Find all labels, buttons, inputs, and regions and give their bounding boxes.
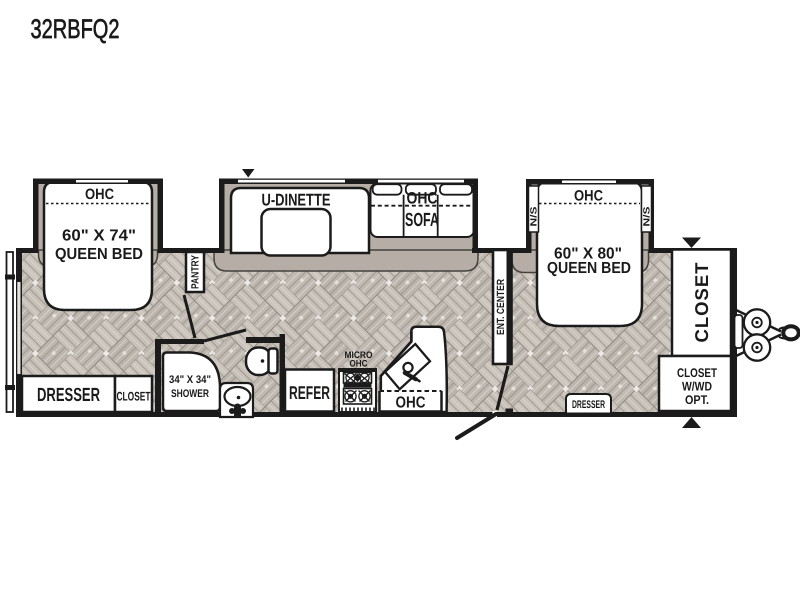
- svg-text:OPT.: OPT.: [685, 393, 709, 407]
- svg-text:34" X 34": 34" X 34": [169, 374, 211, 386]
- svg-text:32RBFQ2: 32RBFQ2: [31, 14, 120, 44]
- svg-text:OHC: OHC: [85, 186, 114, 203]
- svg-text:SOFA: SOFA: [405, 210, 439, 231]
- svg-text:OHC: OHC: [350, 359, 368, 370]
- svg-text:DRESSER: DRESSER: [572, 399, 605, 411]
- svg-text:W/WD: W/WD: [682, 380, 712, 394]
- svg-text:QUEEN BED: QUEEN BED: [55, 246, 143, 263]
- svg-text:CLOSET: CLOSET: [691, 262, 712, 343]
- svg-text:OHC: OHC: [407, 189, 438, 207]
- svg-text:CLOSET: CLOSET: [677, 366, 717, 380]
- svg-text:ENT. CENTER: ENT. CENTER: [495, 279, 507, 335]
- svg-text:U-DINETTE: U-DINETTE: [262, 191, 331, 210]
- svg-text:REFER: REFER: [289, 382, 330, 403]
- svg-text:OHC: OHC: [574, 188, 603, 205]
- svg-text:N/S: N/S: [642, 207, 652, 227]
- svg-text:N/S: N/S: [529, 207, 539, 227]
- svg-text:OHC: OHC: [396, 395, 426, 412]
- svg-text:SHOWER: SHOWER: [171, 388, 209, 400]
- svg-text:CLOSET: CLOSET: [117, 390, 151, 404]
- svg-text:60" X 74": 60" X 74": [62, 228, 136, 245]
- svg-text:QUEEN BED: QUEEN BED: [547, 260, 631, 277]
- svg-text:PANTRY: PANTRY: [190, 255, 202, 289]
- svg-text:DRESSER: DRESSER: [37, 385, 100, 406]
